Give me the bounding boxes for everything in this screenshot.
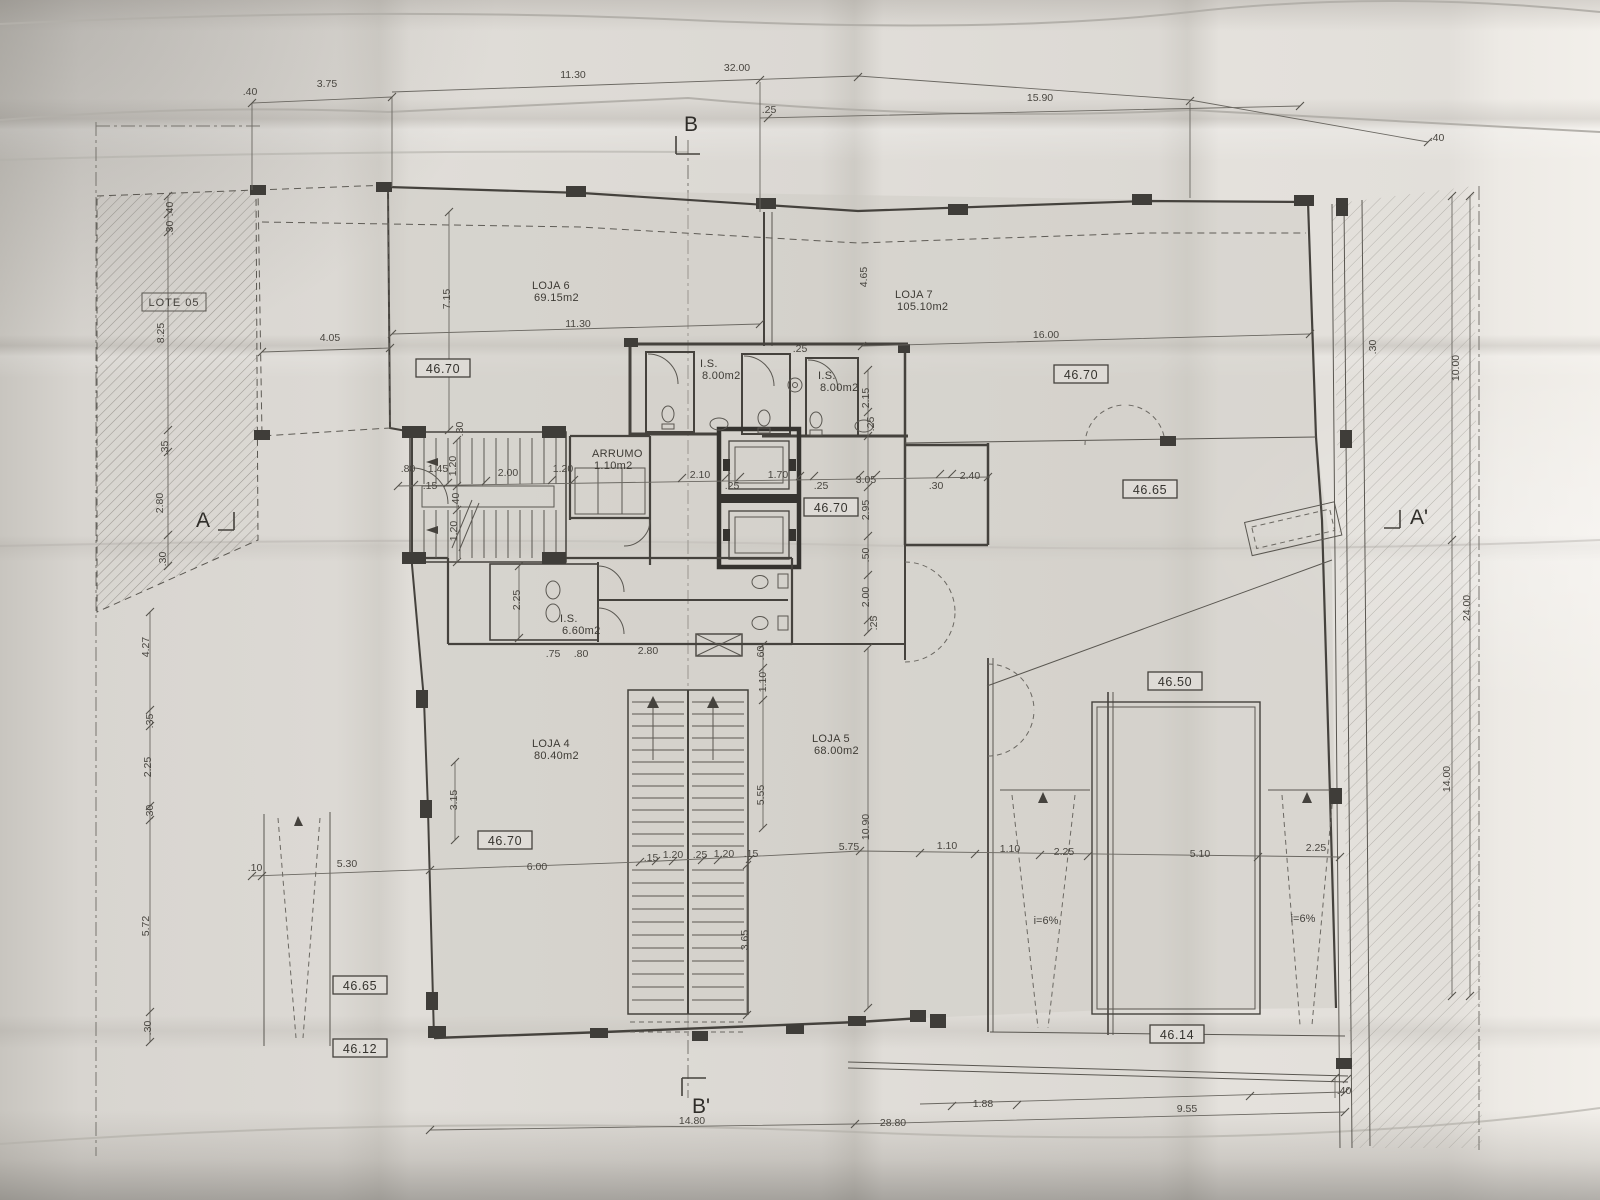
dimension-label: .25 <box>814 480 829 492</box>
dimension-label: 11.30 <box>565 318 591 330</box>
dimension-label: 1.20 <box>448 521 460 542</box>
dimension-label: 2.80 <box>638 645 659 657</box>
dimension-label: 32.00 <box>724 62 750 74</box>
dimension-label: 2.25 <box>142 757 154 778</box>
dimension-label: 2.25 <box>511 590 523 611</box>
room-area: 6.60m2 <box>562 625 601 637</box>
dimension-label: 1.70 <box>768 469 789 481</box>
elevation-value: 46.70 <box>426 362 460 376</box>
section-marker: B' <box>692 1095 710 1118</box>
dimension-label: 4.27 <box>140 637 152 658</box>
dimension-label: 2.40 <box>960 470 981 482</box>
dimension-label: .35 <box>144 714 156 729</box>
dimension-label: 1.10 <box>937 840 958 852</box>
dimension-label: 7.15 <box>441 289 453 310</box>
elevation-value: 46.65 <box>343 979 377 993</box>
dimension-label: 2.00 <box>860 587 872 608</box>
dimension-label: .40 <box>243 86 258 98</box>
dimension-label: .40 <box>450 493 462 508</box>
room-area: 68.00m2 <box>814 745 859 757</box>
dimension-label: 2.95 <box>860 500 872 521</box>
dimension-label: 5.72 <box>140 916 152 937</box>
dimension-label: 6.00 <box>527 861 548 873</box>
dimension-label: 1.88 <box>973 1098 994 1110</box>
elevation-value: 46.70 <box>488 834 522 848</box>
dimension-label: .40 <box>1430 132 1445 144</box>
elevation-value: 46.70 <box>814 501 848 515</box>
dimension-label: .15 <box>744 848 759 860</box>
dimension-label: 2.00 <box>498 467 519 479</box>
dimension-label: .80 <box>574 648 589 660</box>
dimension-label: 3.15 <box>448 790 460 811</box>
dimension-label: 2.10 <box>690 469 711 481</box>
floor-slab <box>390 188 1336 1038</box>
dimension-label: .35 <box>159 441 171 456</box>
dimension-label: 24.00 <box>1461 595 1473 621</box>
dimension-label: 3.65 <box>739 930 751 951</box>
elevation-value: 46.65 <box>1133 483 1167 497</box>
dimension-label: .40 <box>164 202 176 217</box>
room-name: I.S. <box>700 358 718 370</box>
dimension-label: .25 <box>693 849 708 861</box>
dimension-label: 8.25 <box>155 323 167 344</box>
dimension-label: 28.80 <box>880 1117 906 1129</box>
elevation-value: 46.14 <box>1160 1028 1194 1042</box>
dimension-label: 5.30 <box>337 858 358 870</box>
dimension-label: .30 <box>142 1021 154 1036</box>
dimension-label: .25 <box>793 343 808 355</box>
dimension-label: .30 <box>454 422 466 437</box>
dimension-label: 2.15 <box>860 388 872 409</box>
dimension-label: 16.00 <box>1033 329 1059 341</box>
dimension-label: 1.20 <box>553 463 574 475</box>
dimension-label: 4.65 <box>858 267 870 288</box>
room-name: LOJA 5 <box>812 733 850 745</box>
dimension-label: .30 <box>144 805 156 820</box>
dimension-label: 3.05 <box>856 474 877 486</box>
room-area: 105.10m2 <box>897 301 948 313</box>
dimension-label: .25 <box>868 616 880 631</box>
dimension-label: 5.75 <box>839 841 860 853</box>
dimension-label: 10.00 <box>1450 355 1462 381</box>
dimension-label: 5.55 <box>755 785 767 806</box>
dimension-label: 1.45 <box>428 463 449 475</box>
dimension-label: .30 <box>929 480 944 492</box>
dimension-label: .25 <box>725 480 740 492</box>
room-name: LOJA 6 <box>532 280 570 292</box>
dimension-label: .40 <box>1337 1085 1352 1097</box>
dimension-label: 2.80 <box>154 493 166 514</box>
dimension-label: 1.20 <box>714 848 735 860</box>
dimension-label: .15 <box>644 852 659 864</box>
dimension-label: 14.00 <box>1441 766 1453 792</box>
dimension-label: 1.10 <box>757 672 769 693</box>
ramp-slope-label: i=6% <box>1034 915 1059 927</box>
dimension-label: 2.25 <box>1306 842 1327 854</box>
elevation-value: 46.50 <box>1158 675 1192 689</box>
dimension-label: 4.05 <box>320 332 341 344</box>
section-marker: A <box>196 509 210 532</box>
dimension-label: 1.20 <box>663 849 684 861</box>
room-area: 8.00m2 <box>702 370 741 382</box>
dimension-label: .30 <box>157 552 169 567</box>
lote-05-hatch <box>97 190 258 612</box>
dimension-label: 15.90 <box>1027 92 1053 104</box>
dimension-label: .10 <box>248 862 263 874</box>
room-name: ARRUMO <box>592 448 643 460</box>
photographed-floor-plan: LOTE 05 LOJA 669.15m2LOJA 7105.10m2LOJA … <box>0 0 1600 1200</box>
room-name: LOJA 4 <box>532 738 570 750</box>
dimension-label: .75 <box>546 648 561 660</box>
dimension-label: 1.10 <box>1000 843 1021 855</box>
room-area: 1.10m2 <box>594 460 633 472</box>
dimension-label: 3.75 <box>317 78 338 90</box>
dimension-label: .25 <box>762 104 777 116</box>
road-strip-hatch <box>1332 186 1482 1148</box>
dimension-label: 10.90 <box>860 814 872 840</box>
dimension-label: .60 <box>755 646 767 661</box>
room-area: 8.00m2 <box>820 382 859 394</box>
dimension-label: .50 <box>860 548 872 563</box>
dimension-label: .80 <box>401 463 416 475</box>
section-marker: A' <box>1410 506 1428 529</box>
dimension-label: 9.55 <box>1177 1103 1198 1115</box>
dimension-label: 1.20 <box>447 456 459 477</box>
room-area: 80.40m2 <box>534 750 579 762</box>
dimension-label: .25 <box>865 417 877 432</box>
section-marker: B <box>684 113 698 136</box>
room-area: 69.15m2 <box>534 292 579 304</box>
room-name: I.S. <box>560 613 578 625</box>
dimension-label: .30 <box>1367 340 1379 355</box>
dimension-label: 2.25 <box>1054 846 1075 858</box>
dimension-label: .15 <box>423 480 438 492</box>
room-name: LOJA 7 <box>895 289 933 301</box>
lot-label-text: LOTE 05 <box>148 297 199 309</box>
floor-plan-drawing: LOTE 05 LOJA 669.15m2LOJA 7105.10m2LOJA … <box>0 0 1600 1200</box>
dimension-label: 5.10 <box>1190 848 1211 860</box>
dimension-label: 11.30 <box>560 69 586 81</box>
elevation-value: 46.70 <box>1064 368 1098 382</box>
elevation-value: 46.12 <box>343 1042 377 1056</box>
ramp-slope-label: i=6% <box>1291 913 1316 925</box>
dimension-label: .30 <box>164 221 176 236</box>
room-name: I.S. <box>818 370 836 382</box>
